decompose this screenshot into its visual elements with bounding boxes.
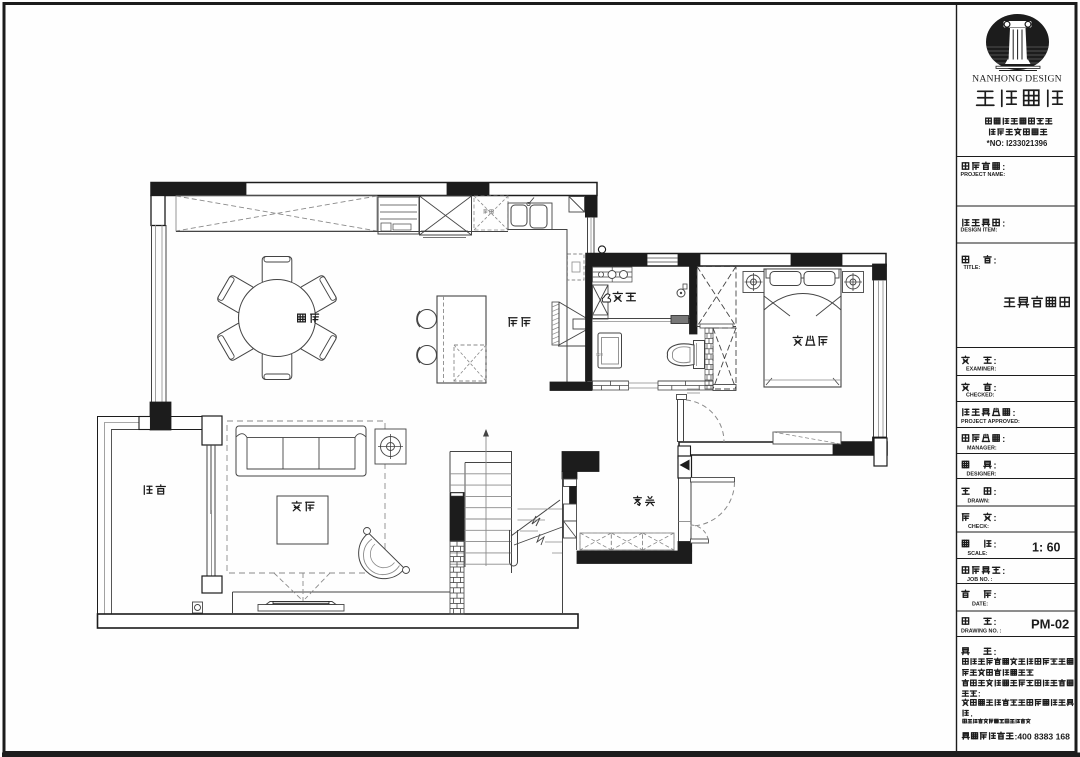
svg-text:PROJECT NAME:: PROJECT NAME: [961, 172, 1006, 178]
svg-text::: : [1002, 218, 1005, 228]
svg-text::: : [994, 460, 997, 470]
svg-text:CHECK:: CHECK: [968, 524, 989, 530]
svg-text:.: . [971, 710, 973, 719]
svg-text:DATE:: DATE: [972, 602, 988, 608]
svg-text:DESIGN ITEM:: DESIGN ITEM: [961, 228, 998, 234]
svg-text::: : [994, 356, 997, 366]
svg-text:TITLE:: TITLE: [964, 265, 981, 271]
svg-text::: : [994, 513, 997, 523]
svg-text:DRAWN:: DRAWN: [968, 499, 990, 505]
svg-text:1: 60: 1: 60 [1032, 541, 1061, 555]
svg-text::: : [1013, 408, 1016, 418]
svg-text::: : [994, 617, 997, 627]
svg-text::: : [994, 383, 997, 393]
svg-text:PM-02: PM-02 [1031, 617, 1069, 632]
svg-text::400 8383 168: :400 8383 168 [1015, 732, 1071, 742]
svg-text::: : [1002, 434, 1005, 444]
svg-text:EXAMINER:: EXAMINER: [966, 367, 996, 373]
svg-text::: : [994, 487, 997, 497]
svg-text:*NO: I233021396: *NO: I233021396 [987, 139, 1048, 148]
svg-text::: : [1002, 566, 1005, 576]
svg-text:DESIGNER:: DESIGNER: [967, 472, 997, 478]
svg-text:MANAGER:: MANAGER: [967, 446, 997, 452]
svg-text::: : [994, 539, 997, 549]
svg-text::: : [978, 690, 981, 699]
svg-text:NANHONG DESIGN: NANHONG DESIGN [972, 74, 1062, 85]
svg-text:DRAWING NO. :: DRAWING NO. : [961, 629, 1002, 635]
svg-text:020: 020 [596, 352, 604, 357]
svg-text::: : [994, 647, 997, 657]
svg-text::: : [994, 255, 997, 265]
svg-text::: : [1002, 162, 1005, 172]
svg-text:JOB NO. :: JOB NO. : [967, 577, 993, 583]
svg-text:CHECKED:: CHECKED: [966, 393, 995, 399]
svg-text::: : [994, 590, 997, 600]
svg-text:SCALE:: SCALE: [968, 551, 988, 557]
svg-text:PROJECT APPROVED:: PROJECT APPROVED: [961, 419, 1020, 425]
